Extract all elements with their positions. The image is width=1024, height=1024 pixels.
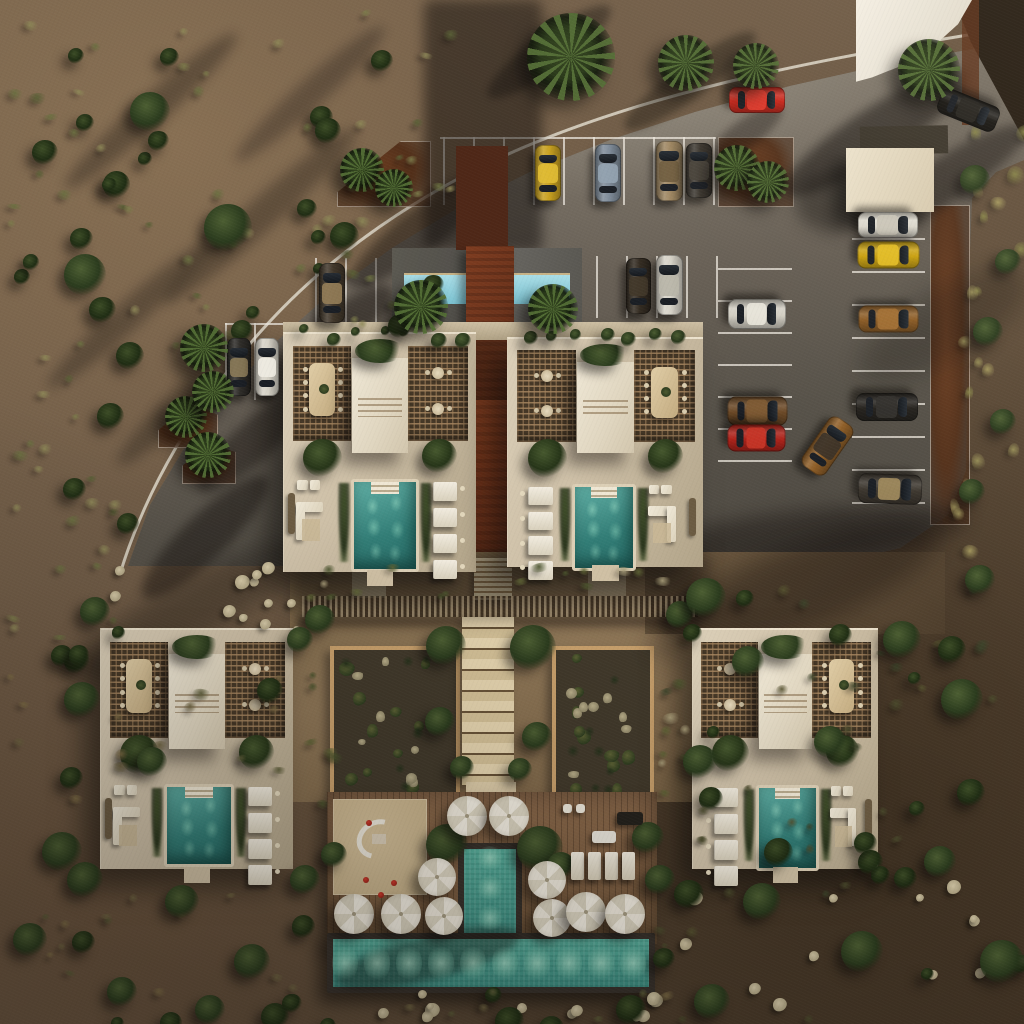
- chair: [682, 383, 687, 388]
- bush-tree: [683, 745, 717, 779]
- side-table: [275, 817, 280, 822]
- car-roof: [629, 277, 648, 296]
- bush-tree: [694, 984, 730, 1020]
- garden-shrub: [339, 657, 353, 670]
- chair: [155, 703, 160, 708]
- chair: [303, 407, 308, 412]
- car-roof: [878, 477, 901, 501]
- bush-tree: [80, 597, 110, 627]
- car: [728, 299, 786, 329]
- car-roof: [322, 283, 342, 303]
- chair: [303, 393, 308, 398]
- chair: [644, 383, 649, 388]
- palm-tree: [898, 39, 960, 101]
- chair: [447, 370, 452, 375]
- chair: [644, 409, 649, 414]
- palm-tree: [658, 35, 714, 91]
- pool-light: [396, 944, 422, 982]
- side-table: [460, 512, 465, 517]
- lounger: [248, 865, 272, 885]
- shrub: [653, 948, 675, 970]
- grass-tuft: [443, 29, 460, 41]
- garden-sage: [382, 657, 389, 668]
- aerial-site-render: Top-down 3D architectural rendering of a…: [0, 0, 1024, 1024]
- chair: [822, 676, 827, 681]
- side-table: [460, 564, 465, 569]
- car-roof: [746, 400, 766, 422]
- rug: [835, 826, 852, 848]
- shrub: [60, 767, 83, 790]
- car-rear-window: [660, 184, 678, 191]
- palm-tree: [747, 161, 789, 203]
- bush-tree: [195, 995, 225, 1024]
- umbrella: [418, 858, 456, 896]
- lounger: [605, 852, 618, 880]
- palm-tree: [527, 13, 615, 101]
- pool-planting: [743, 789, 755, 861]
- car: [656, 255, 683, 315]
- pool-planting: [820, 789, 832, 861]
- car-windshield: [767, 401, 777, 422]
- car: [729, 87, 785, 113]
- stall-line: [852, 436, 925, 438]
- chair: [644, 396, 649, 401]
- stone: [260, 619, 271, 630]
- car-windshield: [901, 479, 912, 501]
- car-rear-window: [323, 306, 341, 313]
- rug: [119, 825, 136, 847]
- chair: [425, 406, 430, 411]
- bush-tree: [107, 977, 137, 1007]
- garden-shrub: [572, 654, 581, 662]
- car-rear-window: [737, 304, 744, 324]
- pool-planting: [235, 788, 247, 857]
- car-roof: [877, 309, 897, 330]
- wall-planting: [570, 329, 582, 341]
- car: [857, 473, 922, 505]
- car: [686, 143, 712, 198]
- walkway-stub: [367, 570, 394, 586]
- side-table: [706, 818, 711, 823]
- car-rear-window: [867, 246, 874, 264]
- wall-planting: [455, 333, 470, 348]
- daybed: [105, 798, 112, 839]
- chair: [303, 367, 308, 372]
- chair: [338, 407, 343, 412]
- pool-steps: [185, 787, 213, 798]
- car-windshield: [599, 154, 618, 163]
- car-roof: [230, 358, 248, 378]
- car: [858, 212, 918, 238]
- bush-tree: [508, 758, 532, 782]
- table-plant: [319, 384, 329, 394]
- lounger: [714, 866, 737, 886]
- car: [626, 258, 651, 314]
- stall-line: [852, 469, 925, 471]
- garden-sage: [579, 702, 588, 713]
- armchair: [114, 785, 125, 795]
- building-unit-upper-right: [507, 337, 703, 567]
- bush-tree: [137, 747, 167, 777]
- pool-light: [492, 944, 518, 982]
- car-windshield: [659, 151, 678, 161]
- stall-line: [718, 460, 792, 462]
- lounger: [571, 852, 584, 880]
- pool-steps: [591, 487, 617, 498]
- grass-tuft: [201, 303, 211, 311]
- chair: [682, 396, 687, 401]
- lounger: [714, 814, 737, 834]
- stall-line: [718, 268, 792, 270]
- umbrella-pole: [352, 912, 356, 916]
- car-rear-window: [738, 91, 745, 109]
- umbrella-pole: [435, 875, 439, 879]
- pool-light: [588, 944, 614, 982]
- chair: [242, 702, 247, 707]
- lounger: [528, 487, 552, 506]
- car-roof: [747, 90, 766, 110]
- stall-line: [596, 256, 598, 318]
- umbrella-pole: [442, 914, 446, 918]
- grass-tuft: [151, 988, 166, 998]
- stall-line: [852, 271, 925, 273]
- chair: [120, 690, 125, 695]
- stone: [680, 938, 693, 951]
- umbrella-pole: [623, 912, 627, 916]
- chair: [822, 690, 827, 695]
- cafe-table: [249, 663, 261, 675]
- car-windshield: [898, 397, 908, 417]
- shrub: [921, 968, 934, 981]
- side-table: [520, 491, 525, 496]
- car-rear-window: [736, 429, 743, 447]
- shrub: [674, 880, 704, 910]
- shrub: [102, 178, 117, 193]
- stall-line: [718, 364, 792, 366]
- garden-shrub: [585, 725, 594, 738]
- garden-sage: [376, 711, 385, 723]
- armchair: [661, 485, 672, 494]
- umbrella-pole: [399, 912, 403, 916]
- grass-tuft: [84, 497, 101, 508]
- bush-tree: [980, 940, 1024, 984]
- grass-tuft: [112, 762, 131, 772]
- car-rear-window: [868, 478, 876, 499]
- bush-tree: [814, 726, 846, 758]
- lounger: [433, 560, 457, 580]
- stone: [264, 599, 273, 608]
- cafe-table: [724, 699, 736, 711]
- pool-light: [620, 944, 646, 982]
- chair: [858, 663, 863, 668]
- bush-tree: [13, 923, 47, 957]
- pool-light: [556, 944, 582, 982]
- cafe-table: [541, 405, 553, 417]
- building-unit-upper-left: [283, 332, 476, 572]
- wall-planting: [431, 333, 446, 348]
- car: [856, 393, 918, 421]
- stone: [287, 599, 296, 608]
- umbrella-pole: [550, 916, 554, 920]
- side-table: [520, 541, 525, 546]
- bush-tree: [995, 249, 1021, 275]
- palm-tree: [394, 280, 448, 334]
- pool-steps: [371, 482, 398, 494]
- lounger: [248, 839, 272, 859]
- roof-volume: [759, 654, 813, 750]
- umbrella-pole: [584, 910, 588, 914]
- garden-sage: [352, 672, 363, 680]
- garden-sage: [566, 688, 577, 699]
- grass-tuft: [722, 887, 737, 899]
- palm-tree: [180, 324, 228, 372]
- bush-tree: [425, 707, 455, 737]
- car: [319, 263, 345, 323]
- car-windshield: [767, 91, 776, 110]
- car-rear-window: [868, 216, 875, 234]
- palm-tree: [733, 43, 779, 89]
- garden-shrub: [367, 724, 377, 740]
- deck-chair: [576, 804, 585, 813]
- shrub: [111, 1017, 124, 1024]
- shrub: [938, 636, 966, 664]
- bush-tree: [64, 254, 106, 296]
- stone: [970, 915, 978, 923]
- chair: [338, 393, 343, 398]
- garden-sage: [603, 693, 612, 704]
- car-windshield: [898, 216, 908, 235]
- grass-tuft: [6, 219, 16, 228]
- bush-tree: [450, 756, 474, 780]
- shrub: [117, 513, 139, 535]
- bush-tree: [510, 625, 556, 671]
- grass-tuft: [129, 894, 138, 904]
- car-roof: [258, 358, 276, 378]
- chair: [682, 409, 687, 414]
- shrub: [89, 297, 116, 324]
- shrub: [72, 931, 95, 954]
- grass-tuft: [309, 672, 317, 680]
- car-rear-window: [599, 186, 617, 193]
- armchair: [649, 485, 660, 494]
- umbrella-pole: [465, 814, 469, 818]
- umbrella: [489, 796, 529, 836]
- side-table: [275, 843, 280, 848]
- building-unit-lower-right: [692, 628, 878, 869]
- garden-shrub: [605, 767, 615, 776]
- umbrella: [533, 899, 571, 937]
- play-platform: [372, 834, 386, 844]
- shrub: [736, 590, 754, 608]
- pool-light: [460, 944, 486, 982]
- roof-volume: [352, 358, 408, 453]
- car-windshield: [659, 265, 678, 275]
- stone: [916, 894, 924, 902]
- chair: [155, 676, 160, 681]
- chair: [822, 663, 827, 668]
- car: [656, 141, 683, 201]
- umbrella: [334, 894, 374, 934]
- shrub: [97, 403, 124, 430]
- shrub: [160, 48, 179, 67]
- car-rear-window: [259, 380, 275, 387]
- bush-tree: [841, 931, 883, 973]
- umbrella-pole: [507, 814, 511, 818]
- lounger: [528, 536, 552, 555]
- car-rear-window: [737, 401, 744, 421]
- garden-sage: [358, 739, 366, 745]
- cafe-table: [432, 367, 444, 379]
- walkway-stub: [184, 867, 211, 883]
- car: [595, 144, 621, 202]
- grass-tuft: [28, 93, 48, 104]
- lounger: [528, 512, 552, 531]
- car-roof: [689, 161, 709, 180]
- garden-shrub: [413, 727, 422, 736]
- garden-shrub: [345, 773, 357, 786]
- bush-tree: [686, 578, 726, 618]
- side-table: [275, 791, 280, 796]
- car-windshield: [629, 268, 647, 277]
- shrub: [330, 222, 359, 251]
- roof-volume: [577, 362, 634, 453]
- rug: [653, 523, 671, 544]
- umbrella: [566, 892, 606, 932]
- roof-planting: [761, 635, 809, 659]
- stone: [115, 566, 125, 576]
- car: [727, 425, 785, 452]
- pool-light: [524, 944, 550, 982]
- chair: [120, 663, 125, 668]
- shrub: [68, 48, 84, 64]
- garden-shrub: [363, 768, 373, 777]
- shrub: [261, 1003, 289, 1024]
- cafe-table: [432, 403, 444, 415]
- grass-tuft: [804, 1015, 815, 1024]
- daybed: [288, 493, 295, 533]
- bush-tree: [990, 409, 1016, 435]
- shrub: [112, 626, 126, 640]
- shrub: [148, 131, 169, 152]
- pool-light: [476, 876, 504, 900]
- car: [727, 397, 787, 426]
- chair: [155, 690, 160, 695]
- car-windshield: [258, 348, 275, 357]
- umbrella: [381, 894, 421, 934]
- bush-tree: [959, 479, 985, 505]
- garden-shrub: [567, 744, 579, 758]
- chair: [447, 406, 452, 411]
- garden-shrub: [393, 749, 403, 758]
- bar-counter: [617, 812, 643, 825]
- car-windshield: [539, 155, 558, 164]
- stall-line: [716, 256, 718, 318]
- private-pool: [572, 484, 636, 571]
- garden-shrub: [353, 692, 365, 706]
- play-ball: [378, 892, 384, 898]
- bush-tree: [965, 565, 995, 595]
- cafe-table: [541, 370, 553, 382]
- car-roof: [598, 164, 618, 184]
- car-roof: [877, 245, 898, 266]
- car-rear-window: [866, 397, 873, 416]
- chair: [556, 373, 561, 378]
- roof-planting: [580, 344, 631, 367]
- grass-tuft: [144, 222, 155, 228]
- shrub: [292, 915, 316, 939]
- pool-planting: [420, 483, 432, 562]
- lounger: [622, 852, 635, 880]
- pool-light: [476, 846, 504, 870]
- shrub: [894, 867, 917, 890]
- lounger: [433, 534, 457, 554]
- wall-planting: [601, 328, 615, 342]
- chair: [739, 702, 744, 707]
- chair: [858, 703, 863, 708]
- rug: [302, 519, 319, 540]
- shrub: [371, 50, 393, 72]
- grass-tuft: [40, 914, 50, 920]
- cart: [592, 831, 616, 843]
- stall-line: [686, 256, 688, 318]
- stall-line: [563, 137, 565, 205]
- bush-tree: [290, 865, 320, 895]
- side-table: [520, 516, 525, 521]
- garden-shrub: [402, 656, 413, 667]
- garden-shrub: [609, 675, 621, 685]
- car: [857, 242, 919, 269]
- roof-planting: [172, 635, 222, 659]
- umbrella: [605, 894, 645, 934]
- chair: [822, 703, 827, 708]
- garden-sage: [621, 725, 632, 733]
- garden-sage: [588, 702, 599, 712]
- car-rear-window: [868, 310, 875, 328]
- car: [858, 306, 918, 333]
- chair: [717, 666, 722, 671]
- shrub: [707, 726, 720, 739]
- chair: [155, 663, 160, 668]
- chair: [644, 370, 649, 375]
- terrace-tree: [712, 735, 749, 772]
- pool-planting: [559, 488, 571, 561]
- bush-tree: [632, 822, 664, 854]
- wall-planting: [621, 332, 636, 347]
- car-rear-window: [630, 298, 647, 305]
- lounger: [433, 508, 457, 528]
- garden-plot: [552, 646, 654, 806]
- grass-tuft: [441, 591, 452, 597]
- car-roof: [538, 164, 558, 183]
- bush-tree: [960, 165, 990, 195]
- stall-line: [623, 137, 625, 205]
- private-pool: [164, 784, 234, 867]
- pool-planting: [151, 788, 163, 857]
- shrub: [246, 306, 260, 320]
- shrub: [909, 801, 925, 817]
- terrace-tree: [239, 735, 274, 770]
- grass-tuft: [654, 577, 674, 586]
- pool-light: [476, 906, 504, 930]
- chair: [338, 367, 343, 372]
- garden-shrub: [395, 763, 405, 774]
- grass-tuft: [966, 285, 977, 303]
- side-table: [460, 486, 465, 491]
- armchair: [310, 480, 321, 490]
- roof-stairs: [764, 694, 807, 713]
- stone: [239, 614, 247, 622]
- play-ball: [363, 877, 369, 883]
